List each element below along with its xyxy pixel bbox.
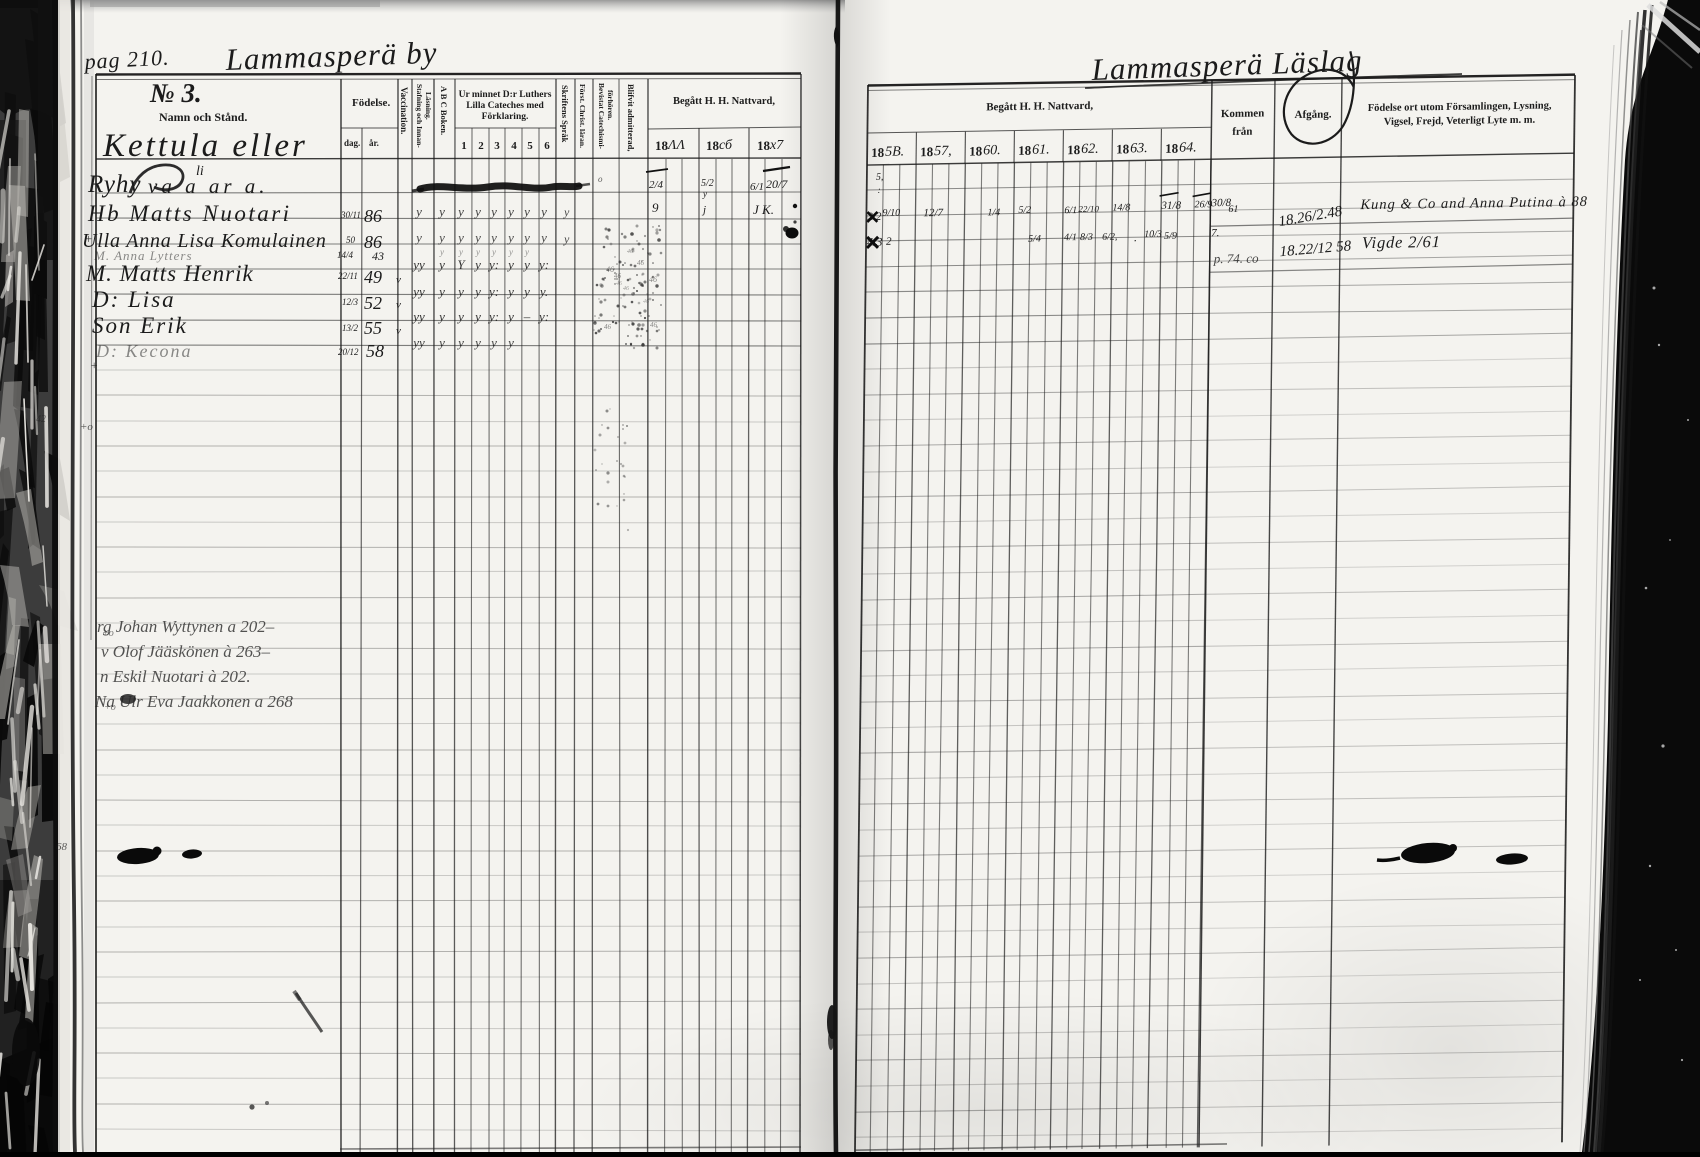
svg-text:Kung & Co and Anna Putina à 88: Kung & Co and Anna Putina à 88 <box>1359 194 1588 213</box>
svg-text:va a ar a.: va a ar a. <box>148 174 269 198</box>
svg-text:y: y <box>473 230 481 245</box>
svg-text:58: 58 <box>366 341 384 361</box>
svg-text:46: 46 <box>650 321 658 329</box>
svg-text:y: y <box>437 309 445 324</box>
svg-text:46: 46 <box>643 298 649 305</box>
svg-text:18: 18 <box>706 138 720 153</box>
svg-text:yy: yy <box>411 257 425 272</box>
svg-text:y: y <box>414 204 422 219</box>
svg-text:y: y <box>473 335 481 350</box>
svg-text:5: 5 <box>527 140 533 152</box>
svg-text:60.: 60. <box>983 143 1001 158</box>
svg-text:Kettula eller: Kettula eller <box>102 128 308 164</box>
svg-text:y: y <box>473 257 481 272</box>
svg-text:o: o <box>598 174 603 184</box>
svg-text:68: 68 <box>56 841 68 853</box>
svg-text:y: y <box>473 204 481 219</box>
svg-text:Bevistat Catechismi-: Bevistat Catechismi- <box>597 83 606 150</box>
svg-text:+o: +o <box>80 421 93 433</box>
svg-text:y: y <box>489 230 497 245</box>
svg-text:y:: y: <box>487 284 499 299</box>
svg-text:y: y <box>456 204 464 219</box>
svg-text:63.: 63. <box>1130 141 1148 156</box>
svg-text:ΛΛ: ΛΛ <box>666 138 685 153</box>
svg-text:år.: år. <box>369 138 379 148</box>
svg-text:Vaccination.: Vaccination. <box>399 87 409 134</box>
svg-text:y: y <box>456 230 464 245</box>
svg-text:5/2: 5/2 <box>1018 205 1031 216</box>
svg-text:62.: 62. <box>1081 142 1099 157</box>
svg-text:64.: 64. <box>1179 140 1197 155</box>
svg-text:Vigde 2/61: Vigde 2/61 <box>1362 232 1441 252</box>
svg-text:y: y <box>702 189 707 199</box>
svg-text:Ur minnet D:r Luthers: Ur minnet D:r Luthers <box>459 90 552 100</box>
svg-text:4/1: 4/1 <box>1064 232 1077 243</box>
svg-text:49: 49 <box>364 267 382 287</box>
svg-text:y: y <box>506 257 514 272</box>
svg-text:2: 2 <box>886 236 892 248</box>
svg-text:y: y <box>506 284 514 299</box>
svg-text:v: v <box>396 299 401 311</box>
svg-text:50: 50 <box>346 235 356 245</box>
svg-text:18: 18 <box>871 145 885 160</box>
svg-text:22/11: 22/11 <box>338 271 358 281</box>
svg-text:46: 46 <box>649 275 657 284</box>
svg-text::: : <box>878 185 881 195</box>
svg-text:8/3: 8/3 <box>1080 232 1093 243</box>
svg-text:18: 18 <box>1018 143 1032 158</box>
svg-text:26/9: 26/9 <box>1194 199 1212 210</box>
svg-text:y: y <box>506 335 514 350</box>
svg-text:57,: 57, <box>934 144 952 159</box>
svg-text:Läsning.: Läsning. <box>424 92 433 120</box>
svg-text:22/10: 22/10 <box>1078 204 1099 214</box>
svg-text:Skriftens Språk: Skriftens Språk <box>560 85 570 143</box>
svg-text:y: y <box>489 204 497 219</box>
svg-text:y:: y: <box>537 257 549 272</box>
svg-text:18: 18 <box>757 138 771 153</box>
svg-text:Först. Christ. läran.: Först. Christ. läran. <box>578 84 587 148</box>
svg-text:6/1: 6/1 <box>750 181 764 193</box>
svg-text:46: 46 <box>604 323 612 331</box>
svg-text:–: – <box>523 309 531 324</box>
svg-text:y: y <box>563 205 570 219</box>
svg-text:y: y <box>437 230 445 245</box>
svg-text:12/7: 12/7 <box>923 207 943 219</box>
svg-text:y: y <box>522 257 530 272</box>
svg-text:42: 42 <box>36 414 46 425</box>
svg-text:y: y <box>439 247 444 257</box>
svg-text:n Eskil Nuotari à 202.: n Eskil Nuotari à 202. <box>100 667 251 686</box>
svg-text:förhören.: förhören. <box>606 90 615 120</box>
svg-text:5/4: 5/4 <box>1028 234 1041 245</box>
svg-text:y: y <box>437 257 445 272</box>
svg-text:Kommen: Kommen <box>1221 107 1265 120</box>
svg-text:D: Kecona: D: Kecona <box>95 341 192 361</box>
svg-text:v Olof Jääskönen à 263–: v Olof Jääskönen à 263– <box>101 642 271 661</box>
svg-text:M. Anna Lytters: M. Anna Lytters <box>93 248 193 263</box>
svg-text:y: y <box>437 335 445 350</box>
svg-text:55: 55 <box>364 318 382 338</box>
svg-text:y: y <box>508 247 513 257</box>
svg-text:№ 3.: № 3. <box>149 78 202 108</box>
svg-text:+: + <box>84 231 93 246</box>
svg-text:Vigsel, Frejd, Veterligt Lyte: Vigsel, Frejd, Veterligt Lyte m. m. <box>1384 115 1536 128</box>
svg-text:1/4: 1/4 <box>987 207 1000 218</box>
svg-text:14/4: 14/4 <box>337 250 354 260</box>
svg-text:х7: х7 <box>769 138 784 153</box>
svg-text:10/3: 10/3 <box>1144 229 1162 240</box>
svg-text:18: 18 <box>920 144 934 159</box>
svg-text:18: 18 <box>1165 141 1179 156</box>
svg-text:y: y <box>456 335 464 350</box>
svg-text:y: y <box>506 309 514 324</box>
svg-text:13/2: 13/2 <box>342 323 359 333</box>
svg-text:31/8: 31/8 <box>1160 200 1181 212</box>
svg-text:20/7: 20/7 <box>766 177 788 191</box>
svg-text:Namn och Stånd.: Namn och Stånd. <box>159 110 247 124</box>
svg-text:D: Lisa: D: Lisa <box>91 287 176 312</box>
svg-text:v: v <box>396 274 401 286</box>
svg-text:Son Erik: Son Erik <box>92 313 188 338</box>
svg-text:y: y <box>506 204 514 219</box>
svg-text:y.: y. <box>538 284 548 299</box>
svg-text:52: 52 <box>364 293 382 313</box>
svg-text:rg Johan Wyttynen a 202–: rg Johan Wyttynen a 202– <box>97 617 275 636</box>
svg-text:43: 43 <box>372 249 384 263</box>
svg-text:y: y <box>489 335 497 350</box>
svg-text:M. Matts Henrik: M. Matts Henrik <box>85 261 254 286</box>
svg-text:18: 18 <box>655 138 669 153</box>
svg-text:y: y <box>458 247 463 257</box>
svg-text:1: 1 <box>461 140 467 152</box>
svg-text:18: 18 <box>1067 142 1081 157</box>
svg-text:46: 46 <box>616 280 622 287</box>
svg-text:y: y <box>539 204 547 219</box>
svg-text:+: + <box>90 358 98 372</box>
svg-text:Lilla Cateches med: Lilla Cateches med <box>466 101 544 111</box>
svg-text:A B C Boken.: A B C Boken. <box>439 86 449 135</box>
svg-text:сб: сб <box>719 138 733 153</box>
svg-text:2: 2 <box>478 140 484 152</box>
svg-text:yy: yy <box>411 284 425 299</box>
svg-text:Hb Matts Nuotari: Hb Matts Nuotari <box>87 201 292 226</box>
svg-text:14/8: 14/8 <box>1112 202 1130 213</box>
svg-text:Begått H. H. Nattvard,: Begått H. H. Nattvard, <box>986 100 1093 113</box>
svg-text:Födelse.: Födelse. <box>352 97 390 109</box>
svg-text:12/3: 12/3 <box>342 297 359 307</box>
svg-text:46: 46 <box>614 272 622 280</box>
svg-text:5B.: 5B. <box>885 144 904 159</box>
svg-text:4: 4 <box>511 140 517 152</box>
svg-text:30/11: 30/11 <box>340 210 361 220</box>
svg-text:Förklaring.: Förklaring. <box>482 112 529 122</box>
svg-text:y: y <box>522 230 530 245</box>
svg-text:y: y <box>456 309 464 324</box>
svg-text:yy: yy <box>411 309 425 324</box>
svg-text:y: y <box>522 284 530 299</box>
svg-text:p. 74. co: p. 74. co <box>1213 251 1259 267</box>
svg-text:y: y <box>563 232 570 246</box>
svg-text:y: y <box>473 284 481 299</box>
svg-text:Stafning och Innan-: Stafning och Innan- <box>415 84 424 148</box>
svg-text:y: y <box>506 230 514 245</box>
svg-text:y: y <box>473 309 481 324</box>
svg-text:y: y <box>437 284 445 299</box>
svg-text:3: 3 <box>494 140 500 152</box>
svg-text:från: från <box>1232 126 1252 138</box>
svg-text:18: 18 <box>969 143 983 158</box>
svg-text:v: v <box>396 325 401 337</box>
svg-text:9/10: 9/10 <box>882 208 900 219</box>
svg-text:y: y <box>475 247 480 257</box>
svg-text:y: y <box>491 247 496 257</box>
svg-text:y: y <box>414 230 422 245</box>
svg-text:46: 46 <box>623 285 629 292</box>
svg-text:Lammasperä by: Lammasperä by <box>224 35 438 77</box>
svg-text:61.: 61. <box>1032 142 1050 157</box>
svg-text:46: 46 <box>637 259 645 267</box>
svg-text:yy: yy <box>411 335 425 350</box>
svg-text:5/9: 5/9 <box>1164 231 1177 242</box>
svg-text:y: y <box>456 284 464 299</box>
svg-text:6: 6 <box>544 140 550 152</box>
svg-text:6/2,: 6/2, <box>1102 232 1117 243</box>
svg-text:46: 46 <box>627 248 633 255</box>
svg-text:7.: 7. <box>1211 227 1219 239</box>
svg-text:9: 9 <box>652 200 659 215</box>
svg-text:y: y <box>522 204 530 219</box>
svg-text:18: 18 <box>1116 141 1130 156</box>
svg-text:Blifvit admitterad,: Blifvit admitterad, <box>626 84 636 152</box>
svg-text:46: 46 <box>606 265 614 274</box>
svg-text:y:: y: <box>537 309 549 324</box>
svg-text:y:: y: <box>487 257 499 272</box>
svg-text:J K.: J K. <box>753 202 774 217</box>
svg-text:5/2: 5/2 <box>701 178 714 189</box>
svg-text:pag 210.: pag 210. <box>82 45 170 75</box>
svg-text:y:: y: <box>487 309 499 324</box>
svg-text:Begått H. H. Nattvard,: Begått H. H. Nattvard, <box>673 96 775 107</box>
svg-text:.: . <box>1134 230 1137 244</box>
svg-text:y: y <box>539 230 547 245</box>
svg-text:5,: 5, <box>876 172 884 183</box>
svg-text:61: 61 <box>1228 204 1238 215</box>
svg-text:Afgång.: Afgång. <box>1294 109 1331 122</box>
svg-text:2/4: 2/4 <box>649 179 664 191</box>
svg-text:y: y <box>524 247 529 257</box>
svg-text:dag.: dag. <box>344 138 360 148</box>
svg-text:6/1: 6/1 <box>1064 205 1077 216</box>
svg-text:20/12: 20/12 <box>338 347 359 357</box>
svg-text:86: 86 <box>364 206 382 226</box>
svg-text:y: y <box>437 204 445 219</box>
